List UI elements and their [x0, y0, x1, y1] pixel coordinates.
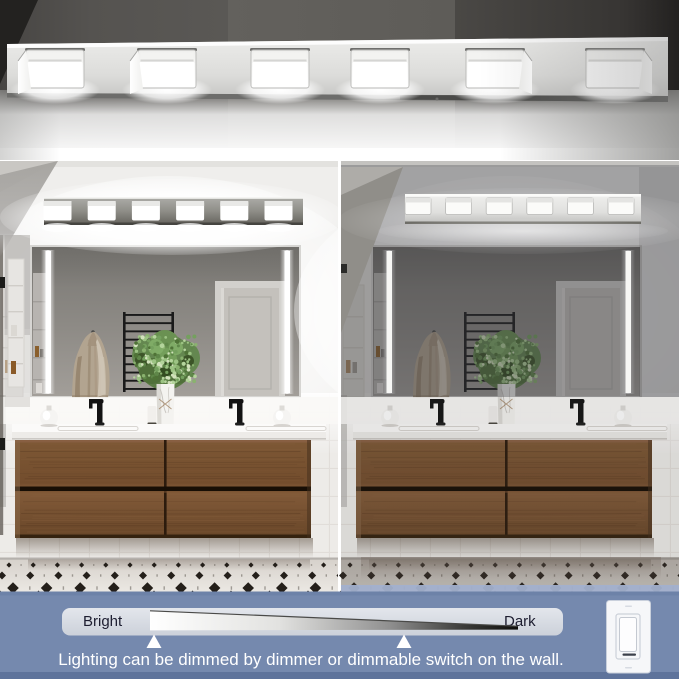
svg-text:Bright: Bright [83, 613, 123, 630]
svg-text:Lighting can be dimmed by dimm: Lighting can be dimmed by dimmer or dimm… [58, 650, 564, 669]
